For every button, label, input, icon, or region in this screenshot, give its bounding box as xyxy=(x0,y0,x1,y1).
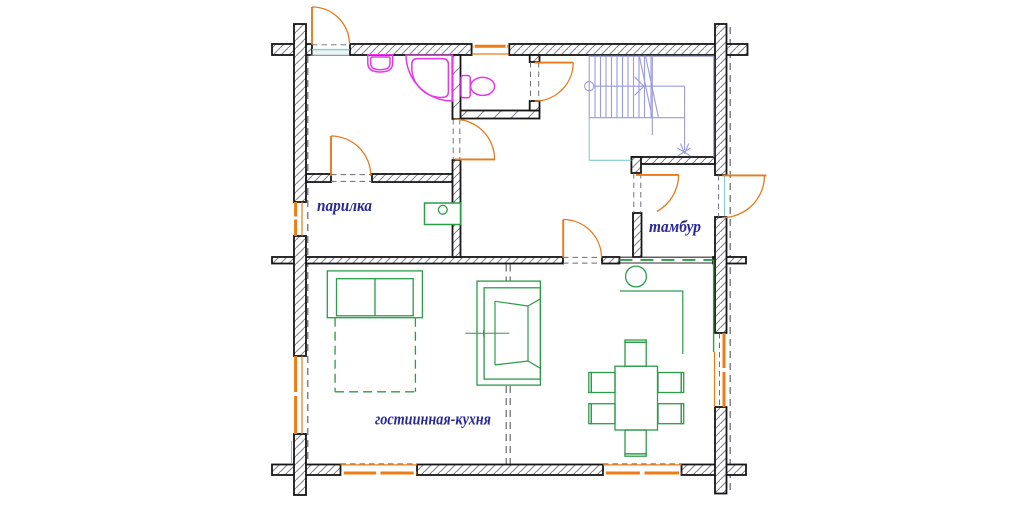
svg-text:гостиинная-кухня: гостиинная-кухня xyxy=(375,410,491,429)
svg-text:тамбур: тамбур xyxy=(649,217,701,236)
svg-text:парилка: парилка xyxy=(317,196,372,215)
